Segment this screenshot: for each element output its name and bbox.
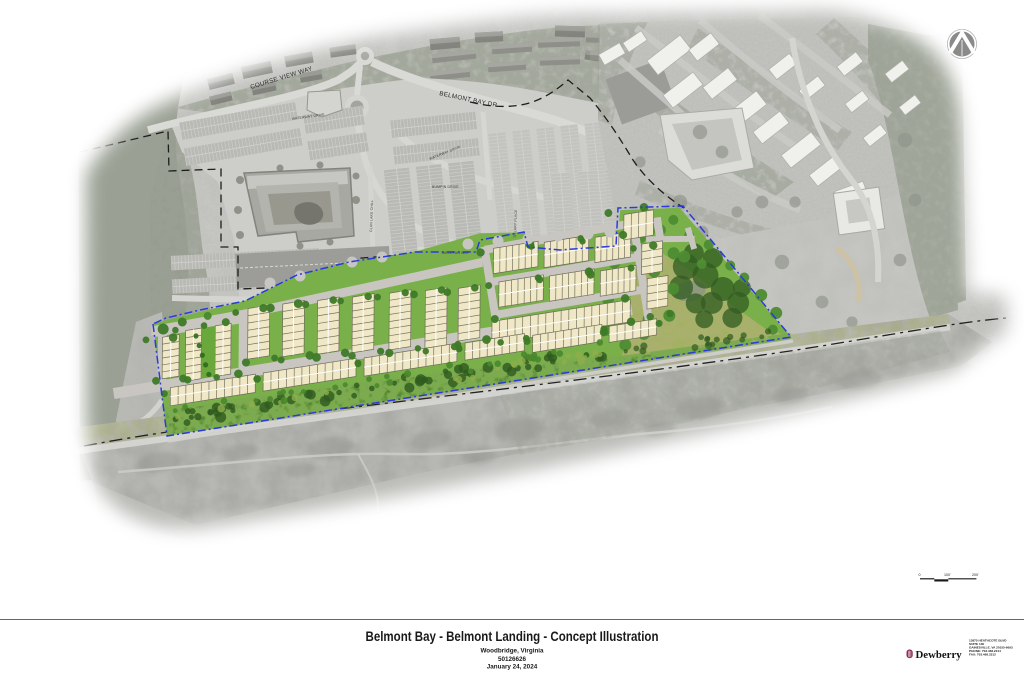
svg-text:BUMPIN DRIVE: BUMPIN DRIVE <box>432 185 459 189</box>
svg-text:Dewberry: Dewberry <box>916 649 963 661</box>
svg-text:50126626: 50126626 <box>498 656 527 663</box>
svg-text:Belmont Bay - Belmont Landing: Belmont Bay - Belmont Landing - Concept … <box>366 629 659 644</box>
svg-text:Woodbridge, Virginia: Woodbridge, Virginia <box>480 648 544 655</box>
svg-text:200': 200' <box>972 573 979 577</box>
svg-text:January 24, 2024: January 24, 2024 <box>487 664 538 671</box>
svg-text:MILLEFAN WAY: MILLEFAN WAY <box>442 251 470 255</box>
svg-text:100': 100' <box>944 573 951 577</box>
svg-text:0: 0 <box>919 573 921 577</box>
svg-text:FAX: 703.468.2312: FAX: 703.468.2312 <box>969 652 996 656</box>
